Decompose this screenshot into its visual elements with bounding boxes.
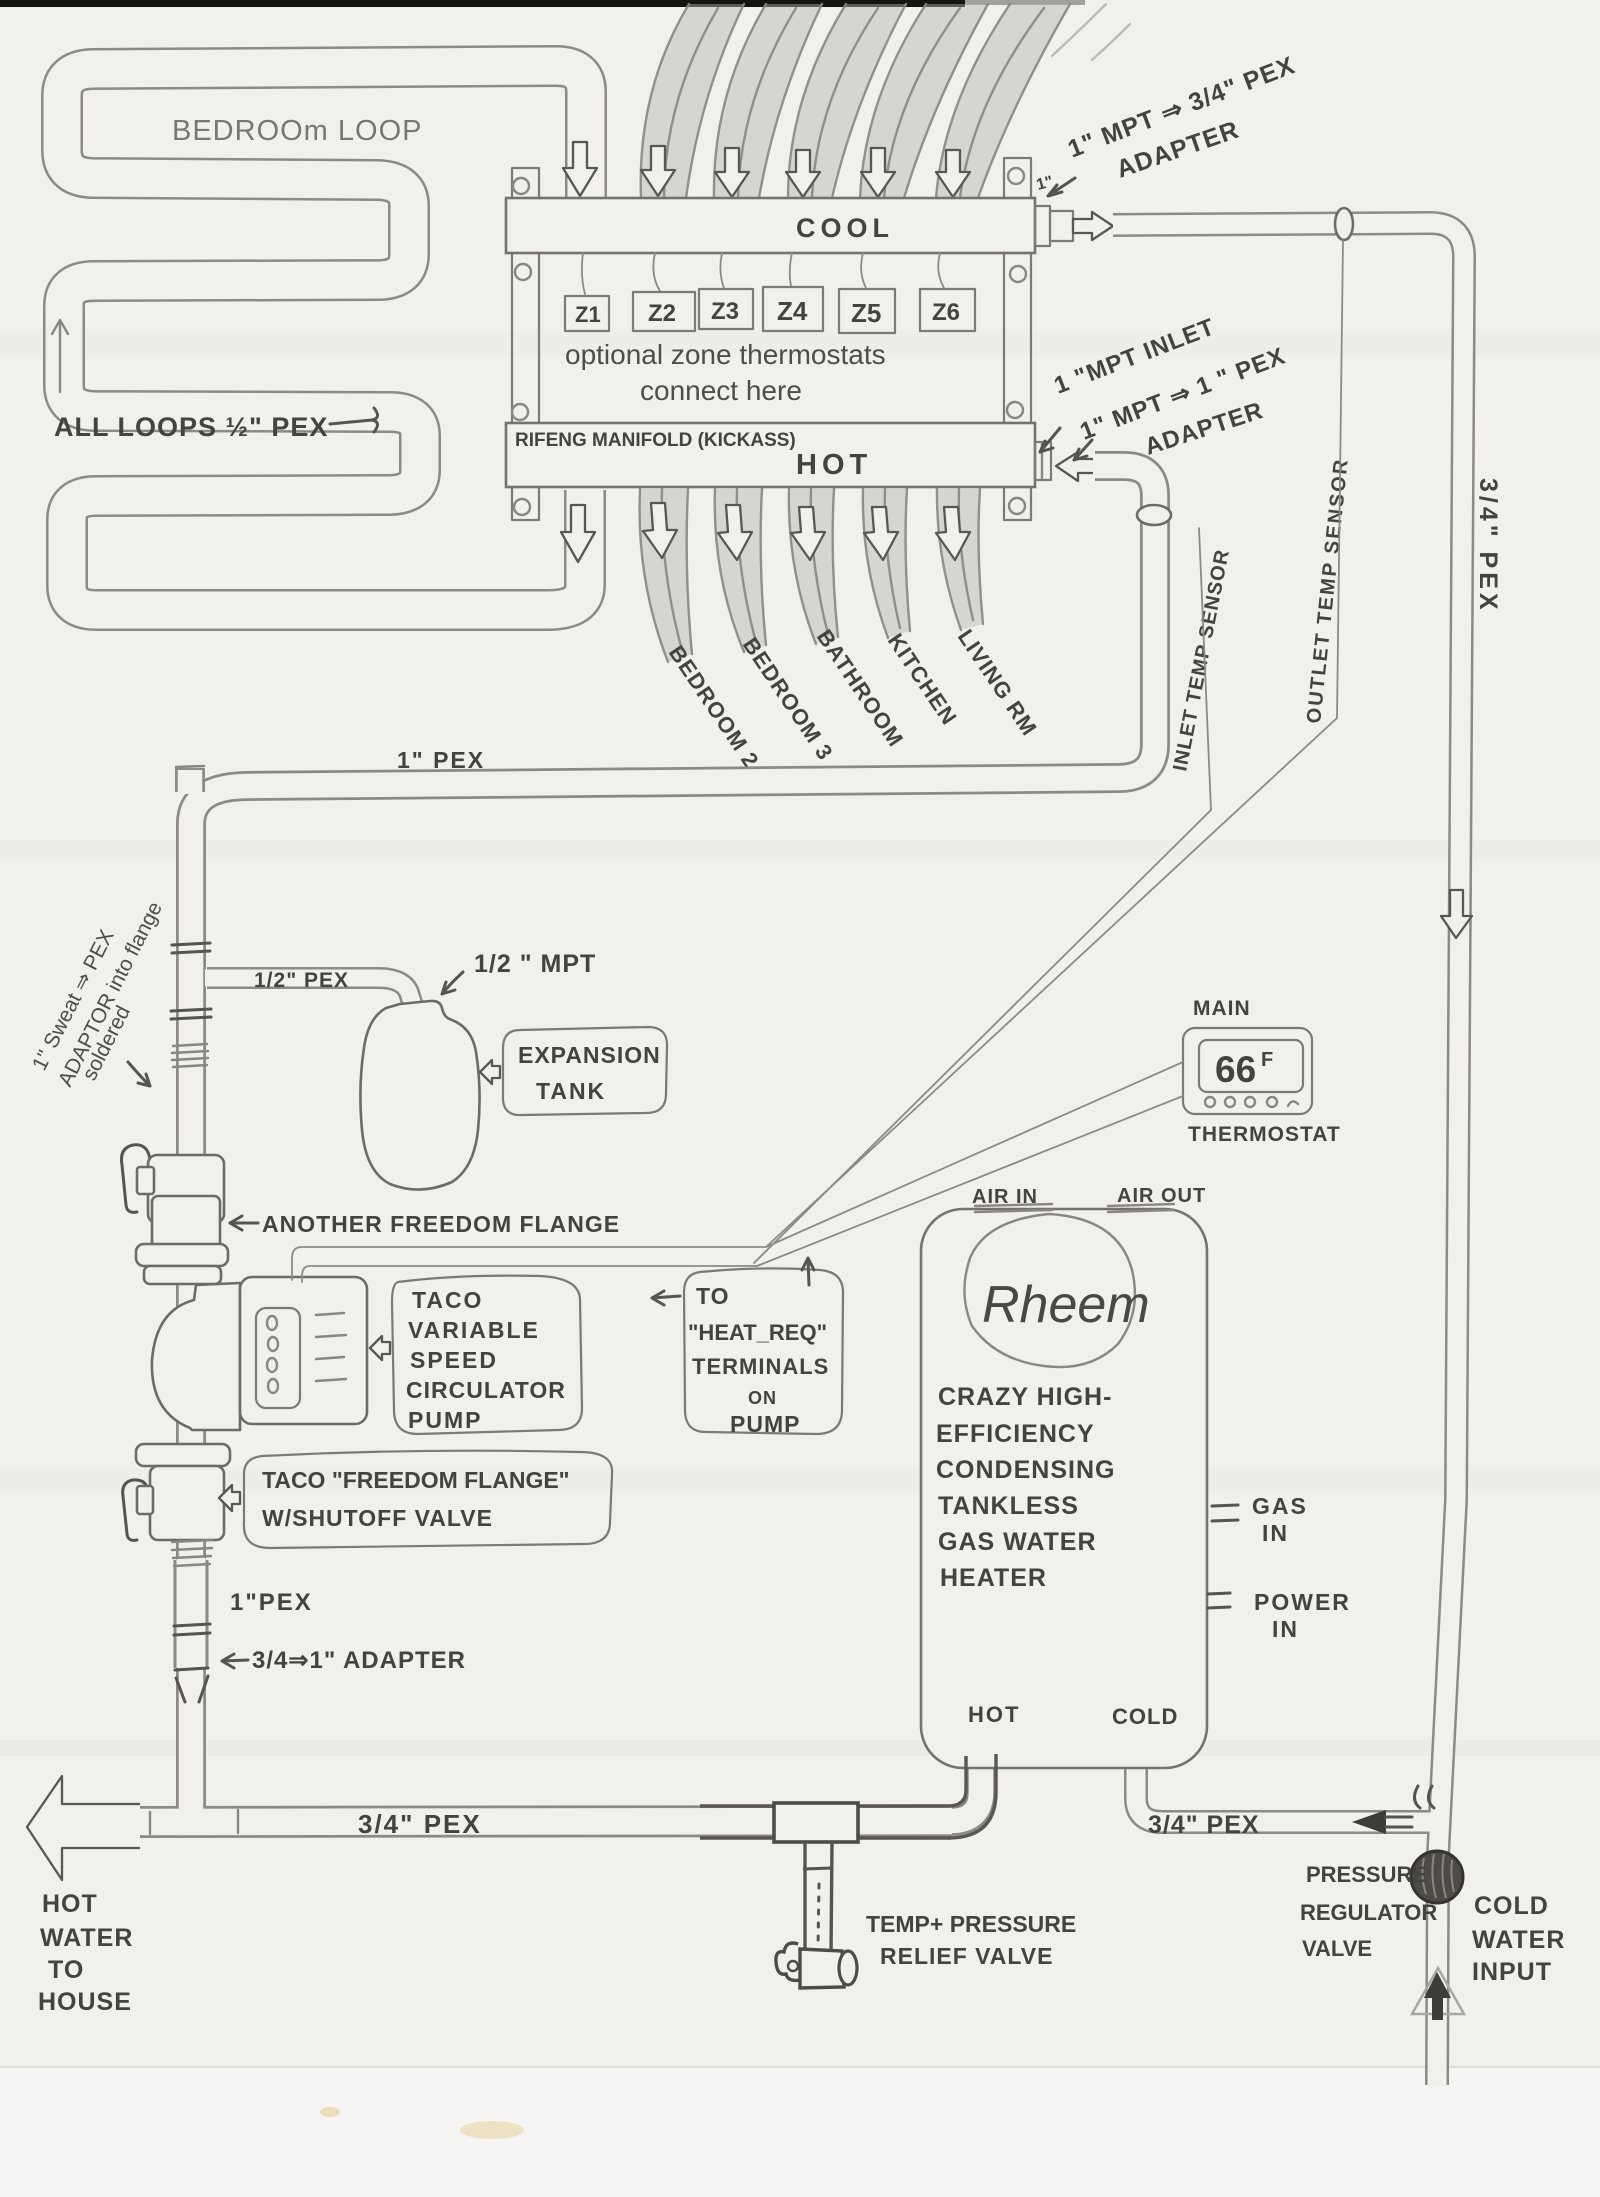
svg-text:1/2 " MPT: 1/2 " MPT	[474, 950, 596, 978]
svg-text:RIFENG MANIFOLD (KICKASS): RIFENG MANIFOLD (KICKASS)	[515, 430, 796, 451]
svg-text:Rheem: Rheem	[982, 1276, 1150, 1334]
svg-text:PUMP: PUMP	[408, 1407, 482, 1433]
svg-text:CRAZY HIGH-: CRAZY HIGH-	[938, 1383, 1112, 1411]
svg-text:RELIEF VALVE: RELIEF VALVE	[880, 1943, 1053, 1969]
svg-text:"HEAT_REQ": "HEAT_REQ"	[688, 1320, 827, 1345]
svg-text:TO: TO	[48, 1956, 84, 1984]
svg-text:TO: TO	[696, 1283, 730, 1309]
svg-text:HOT: HOT	[796, 449, 872, 481]
svg-text:66: 66	[1215, 1049, 1256, 1090]
svg-text:THERMOSTAT: THERMOSTAT	[1188, 1123, 1341, 1146]
svg-text:PUMP: PUMP	[730, 1411, 800, 1437]
svg-text:Z1: Z1	[575, 302, 601, 327]
svg-text:3/4" PEX: 3/4" PEX	[1148, 1811, 1260, 1839]
svg-text:INPUT: INPUT	[1472, 1958, 1552, 1986]
svg-text:TEMP+ PRESSURE: TEMP+ PRESSURE	[866, 1911, 1076, 1937]
svg-text:optional zone thermostats: optional zone thermostats	[565, 339, 886, 370]
svg-text:HOT: HOT	[968, 1702, 1020, 1727]
svg-text:GAS: GAS	[1252, 1493, 1308, 1519]
svg-text:TANKLESS: TANKLESS	[938, 1492, 1079, 1520]
svg-text:TANK: TANK	[536, 1078, 606, 1104]
svg-text:TACO "FREEDOM FLANGE": TACO "FREEDOM FLANGE"	[262, 1467, 570, 1493]
svg-text:MAIN: MAIN	[1193, 997, 1251, 1020]
svg-text:WATER: WATER	[40, 1924, 133, 1952]
svg-text:W/SHUTOFF VALVE: W/SHUTOFF VALVE	[262, 1505, 493, 1531]
svg-text:CIRCULATOR: CIRCULATOR	[406, 1377, 566, 1403]
svg-text:COLD: COLD	[1474, 1892, 1549, 1920]
svg-text:Z5: Z5	[851, 298, 881, 328]
svg-text:F: F	[1261, 1049, 1273, 1071]
svg-text:ANOTHER FREEDOM FLANGE: ANOTHER FREEDOM FLANGE	[262, 1211, 620, 1237]
svg-text:TERMINALS: TERMINALS	[692, 1354, 829, 1379]
svg-text:TACO: TACO	[412, 1287, 483, 1313]
svg-text:connect here: connect here	[640, 375, 802, 406]
svg-text:3/4" PEX: 3/4" PEX	[1474, 478, 1502, 614]
svg-text:BEDROOm LOOP: BEDROOm LOOP	[172, 115, 423, 147]
svg-text:IN: IN	[1262, 1520, 1289, 1546]
svg-text:HOT: HOT	[42, 1890, 98, 1918]
svg-text:3/4⇒1" ADAPTER: 3/4⇒1" ADAPTER	[252, 1647, 466, 1674]
svg-text:Z4: Z4	[777, 296, 808, 326]
svg-text:Z6: Z6	[932, 299, 960, 326]
svg-text:VALVE: VALVE	[1302, 1936, 1372, 1961]
svg-text:REGULATOR: REGULATOR	[1300, 1900, 1437, 1925]
svg-text:Z2: Z2	[648, 300, 676, 327]
svg-text:1/2" PEX: 1/2" PEX	[254, 969, 349, 992]
svg-text:POWER: POWER	[1254, 1589, 1351, 1615]
svg-text:1"PEX: 1"PEX	[230, 1589, 313, 1616]
svg-text:IN: IN	[1272, 1616, 1299, 1642]
svg-text:SPEED: SPEED	[410, 1347, 498, 1373]
svg-text:Z3: Z3	[711, 298, 739, 325]
svg-text:VARIABLE: VARIABLE	[408, 1317, 540, 1343]
svg-text:1" PEX: 1" PEX	[397, 747, 485, 773]
svg-text:GAS WATER: GAS WATER	[938, 1528, 1097, 1556]
svg-text:HEATER: HEATER	[940, 1564, 1047, 1592]
svg-text:EFFICIENCY: EFFICIENCY	[936, 1420, 1095, 1448]
svg-text:PRESSURE: PRESSURE	[1306, 1862, 1427, 1887]
svg-text:COLD: COLD	[1112, 1704, 1178, 1729]
svg-text:WATER: WATER	[1472, 1926, 1565, 1954]
svg-text:EXPANSION: EXPANSION	[518, 1042, 661, 1068]
svg-text:COOL: COOL	[796, 213, 894, 243]
svg-text:ALL LOOPS ½" PEX: ALL LOOPS ½" PEX	[54, 412, 328, 442]
svg-text:3/4" PEX: 3/4" PEX	[358, 1809, 482, 1839]
svg-text:ON: ON	[748, 1388, 777, 1408]
svg-text:CONDENSING: CONDENSING	[936, 1456, 1115, 1484]
svg-text:HOUSE: HOUSE	[38, 1988, 132, 2016]
